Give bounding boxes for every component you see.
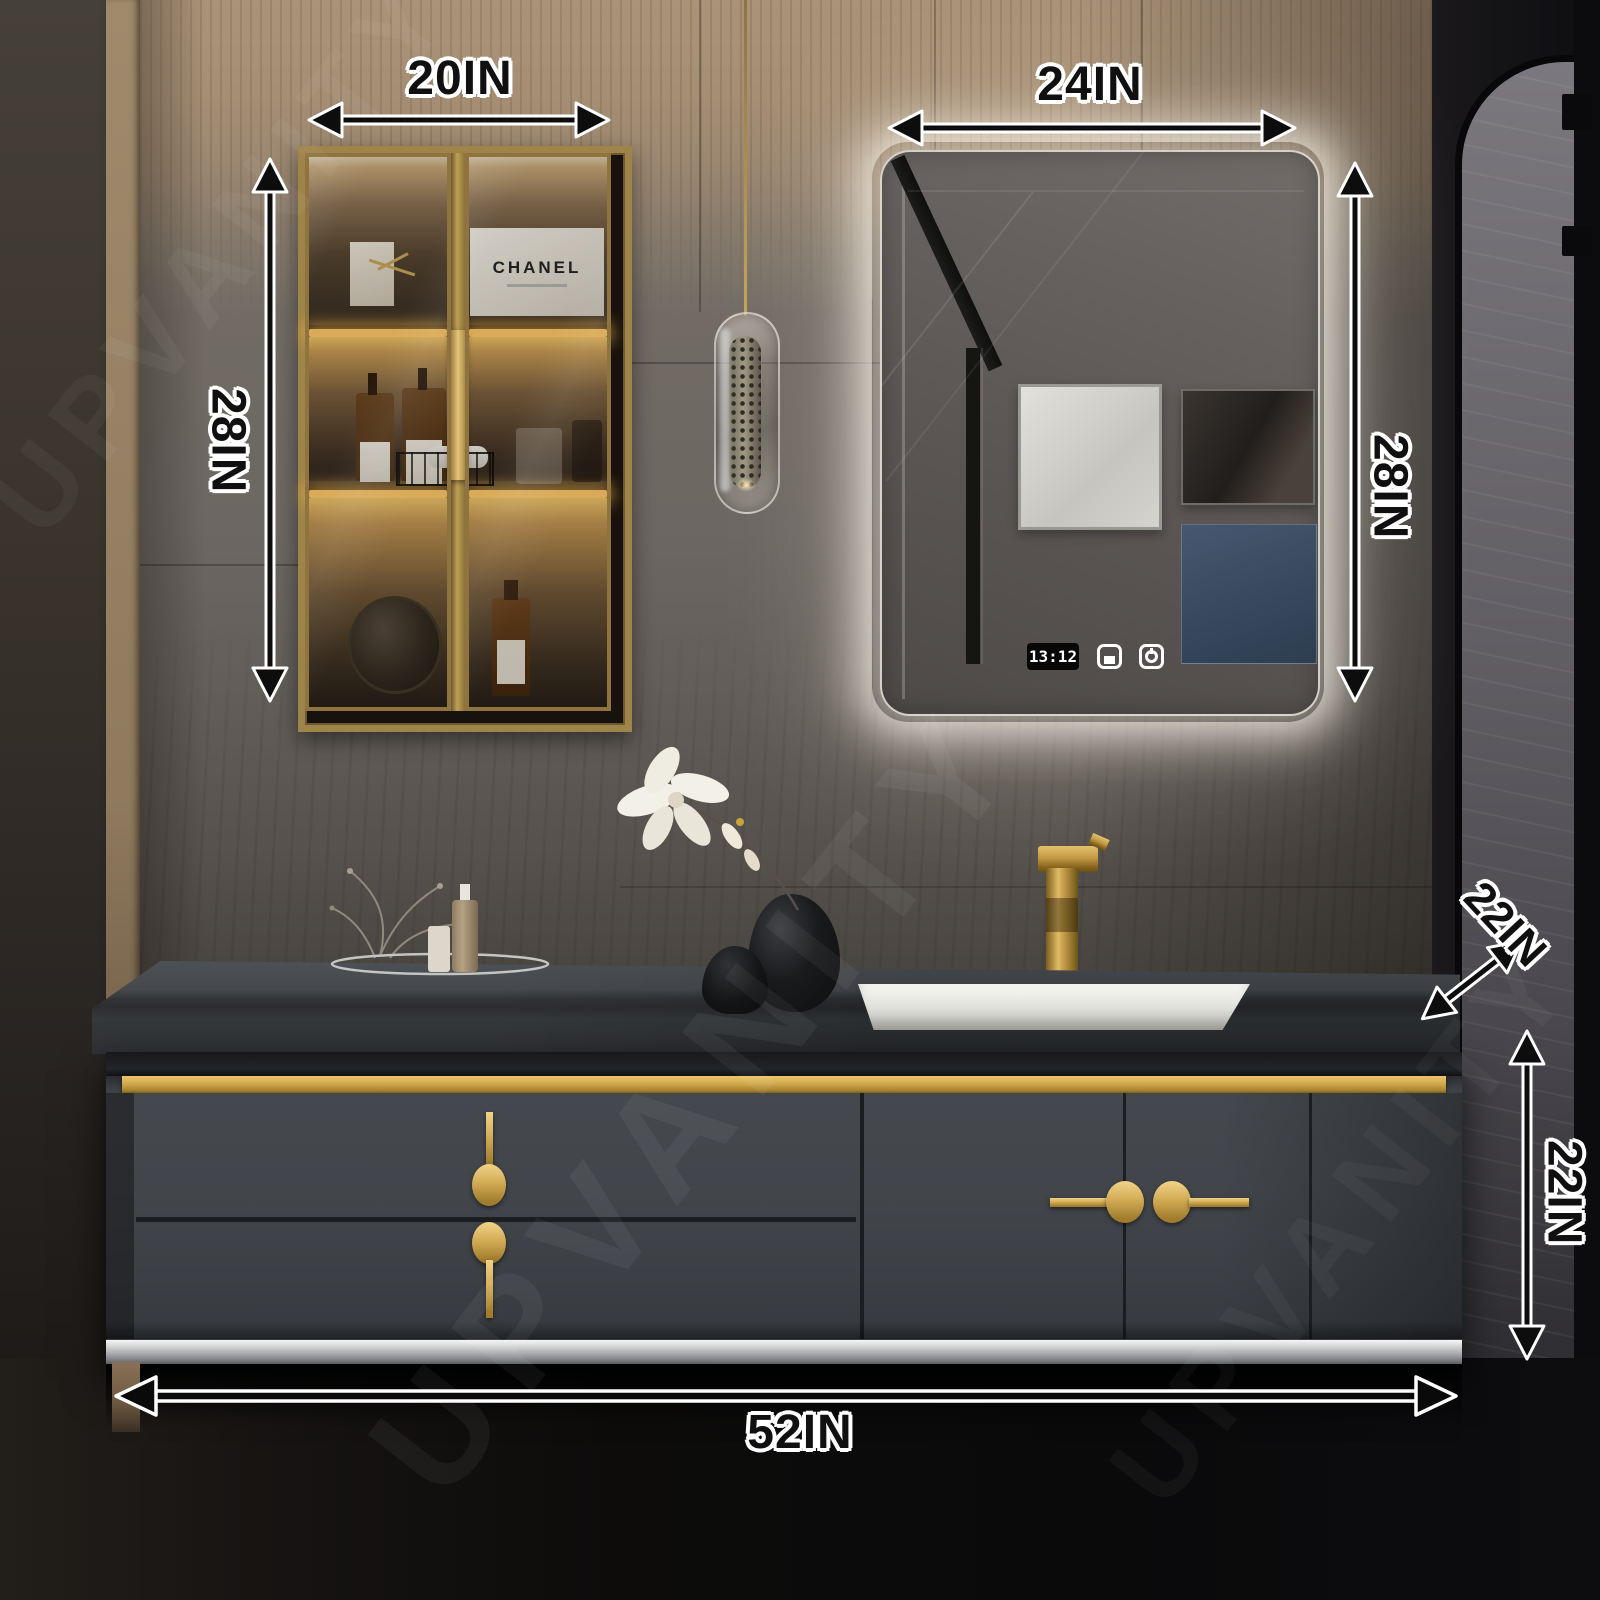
panel-seam: [860, 1093, 864, 1339]
dimension-arrow-mirror-width: [886, 106, 1298, 150]
silver-bottom-trim: [106, 1340, 1462, 1364]
pendant-cord: [744, 0, 747, 316]
faucet-shading: [1046, 898, 1078, 932]
wall-seam: [699, 0, 701, 312]
pendant-inner-shade: [729, 336, 761, 488]
dimension-label-cabinet-width: 20IN: [326, 52, 594, 104]
drawer-handle-knob: [472, 1222, 506, 1264]
shower-handle-tab: [1562, 226, 1592, 256]
power-icon-tick: [1150, 648, 1153, 654]
reflected-artwork-white: [1018, 384, 1162, 530]
perfume-bottle: [452, 900, 478, 972]
mirror-reflection-line: [908, 190, 1304, 192]
drawer-handle-stem: [486, 1112, 493, 1168]
vanity-cabinet: [106, 1052, 1462, 1364]
drawer-handle-knob: [472, 1164, 506, 1206]
vanity-end-stile: [106, 1093, 134, 1339]
candle: [428, 926, 450, 972]
pendant-glow: [736, 478, 756, 492]
dimension-label-vanity-height: 22IN: [1532, 1068, 1596, 1318]
mirror-reflection-frame: [966, 348, 980, 664]
power-icon: [1139, 644, 1164, 669]
door-handle-bar: [1189, 1198, 1249, 1207]
mirror-reflection-edge: [902, 164, 905, 699]
dimension-label-mirror-height: 28IN: [1358, 362, 1422, 612]
defog-icon-pad: [1104, 656, 1115, 664]
dimension-label-cabinet-height: 28IN: [196, 316, 260, 566]
dimension-label-vanity-width: 52IN: [666, 1404, 934, 1460]
defog-icon: [1097, 644, 1122, 669]
mirror-reflection-line: [981, 348, 983, 664]
product-photo-bathroom-vanity: CHANEL 13:12: [0, 0, 1600, 1600]
cabinet-door-frame-left: [305, 153, 451, 711]
gold-trim: [122, 1076, 1446, 1093]
panel-seam: [1309, 1093, 1312, 1339]
vanity-front-panels: [106, 1093, 1462, 1339]
drawer-handle-stem: [486, 1260, 493, 1318]
pendant-highlight: [720, 328, 730, 492]
door-handle-bar: [1050, 1198, 1110, 1207]
led-mirror: 13:12: [880, 150, 1320, 716]
door-handle-knob: [1153, 1181, 1191, 1223]
dimension-label-mirror-width: 24IN: [956, 58, 1224, 110]
panel-shadow: [106, 1321, 1462, 1339]
magnolia-flower: [600, 738, 860, 1028]
shower-handle-tab: [1562, 94, 1592, 130]
clock-display: 13:12: [1027, 643, 1079, 670]
sink-basin: [858, 984, 1250, 1030]
drawer-seam: [136, 1217, 856, 1222]
door-handle-knob: [1106, 1181, 1144, 1223]
vanity-top-groove: [106, 1052, 1462, 1076]
cabinet-door-frame-right: [465, 153, 611, 711]
reflected-artwork-bronze: [1181, 389, 1315, 505]
reflected-artwork-blue: [1181, 524, 1317, 664]
mirror-reflection-frame: [891, 155, 1003, 372]
